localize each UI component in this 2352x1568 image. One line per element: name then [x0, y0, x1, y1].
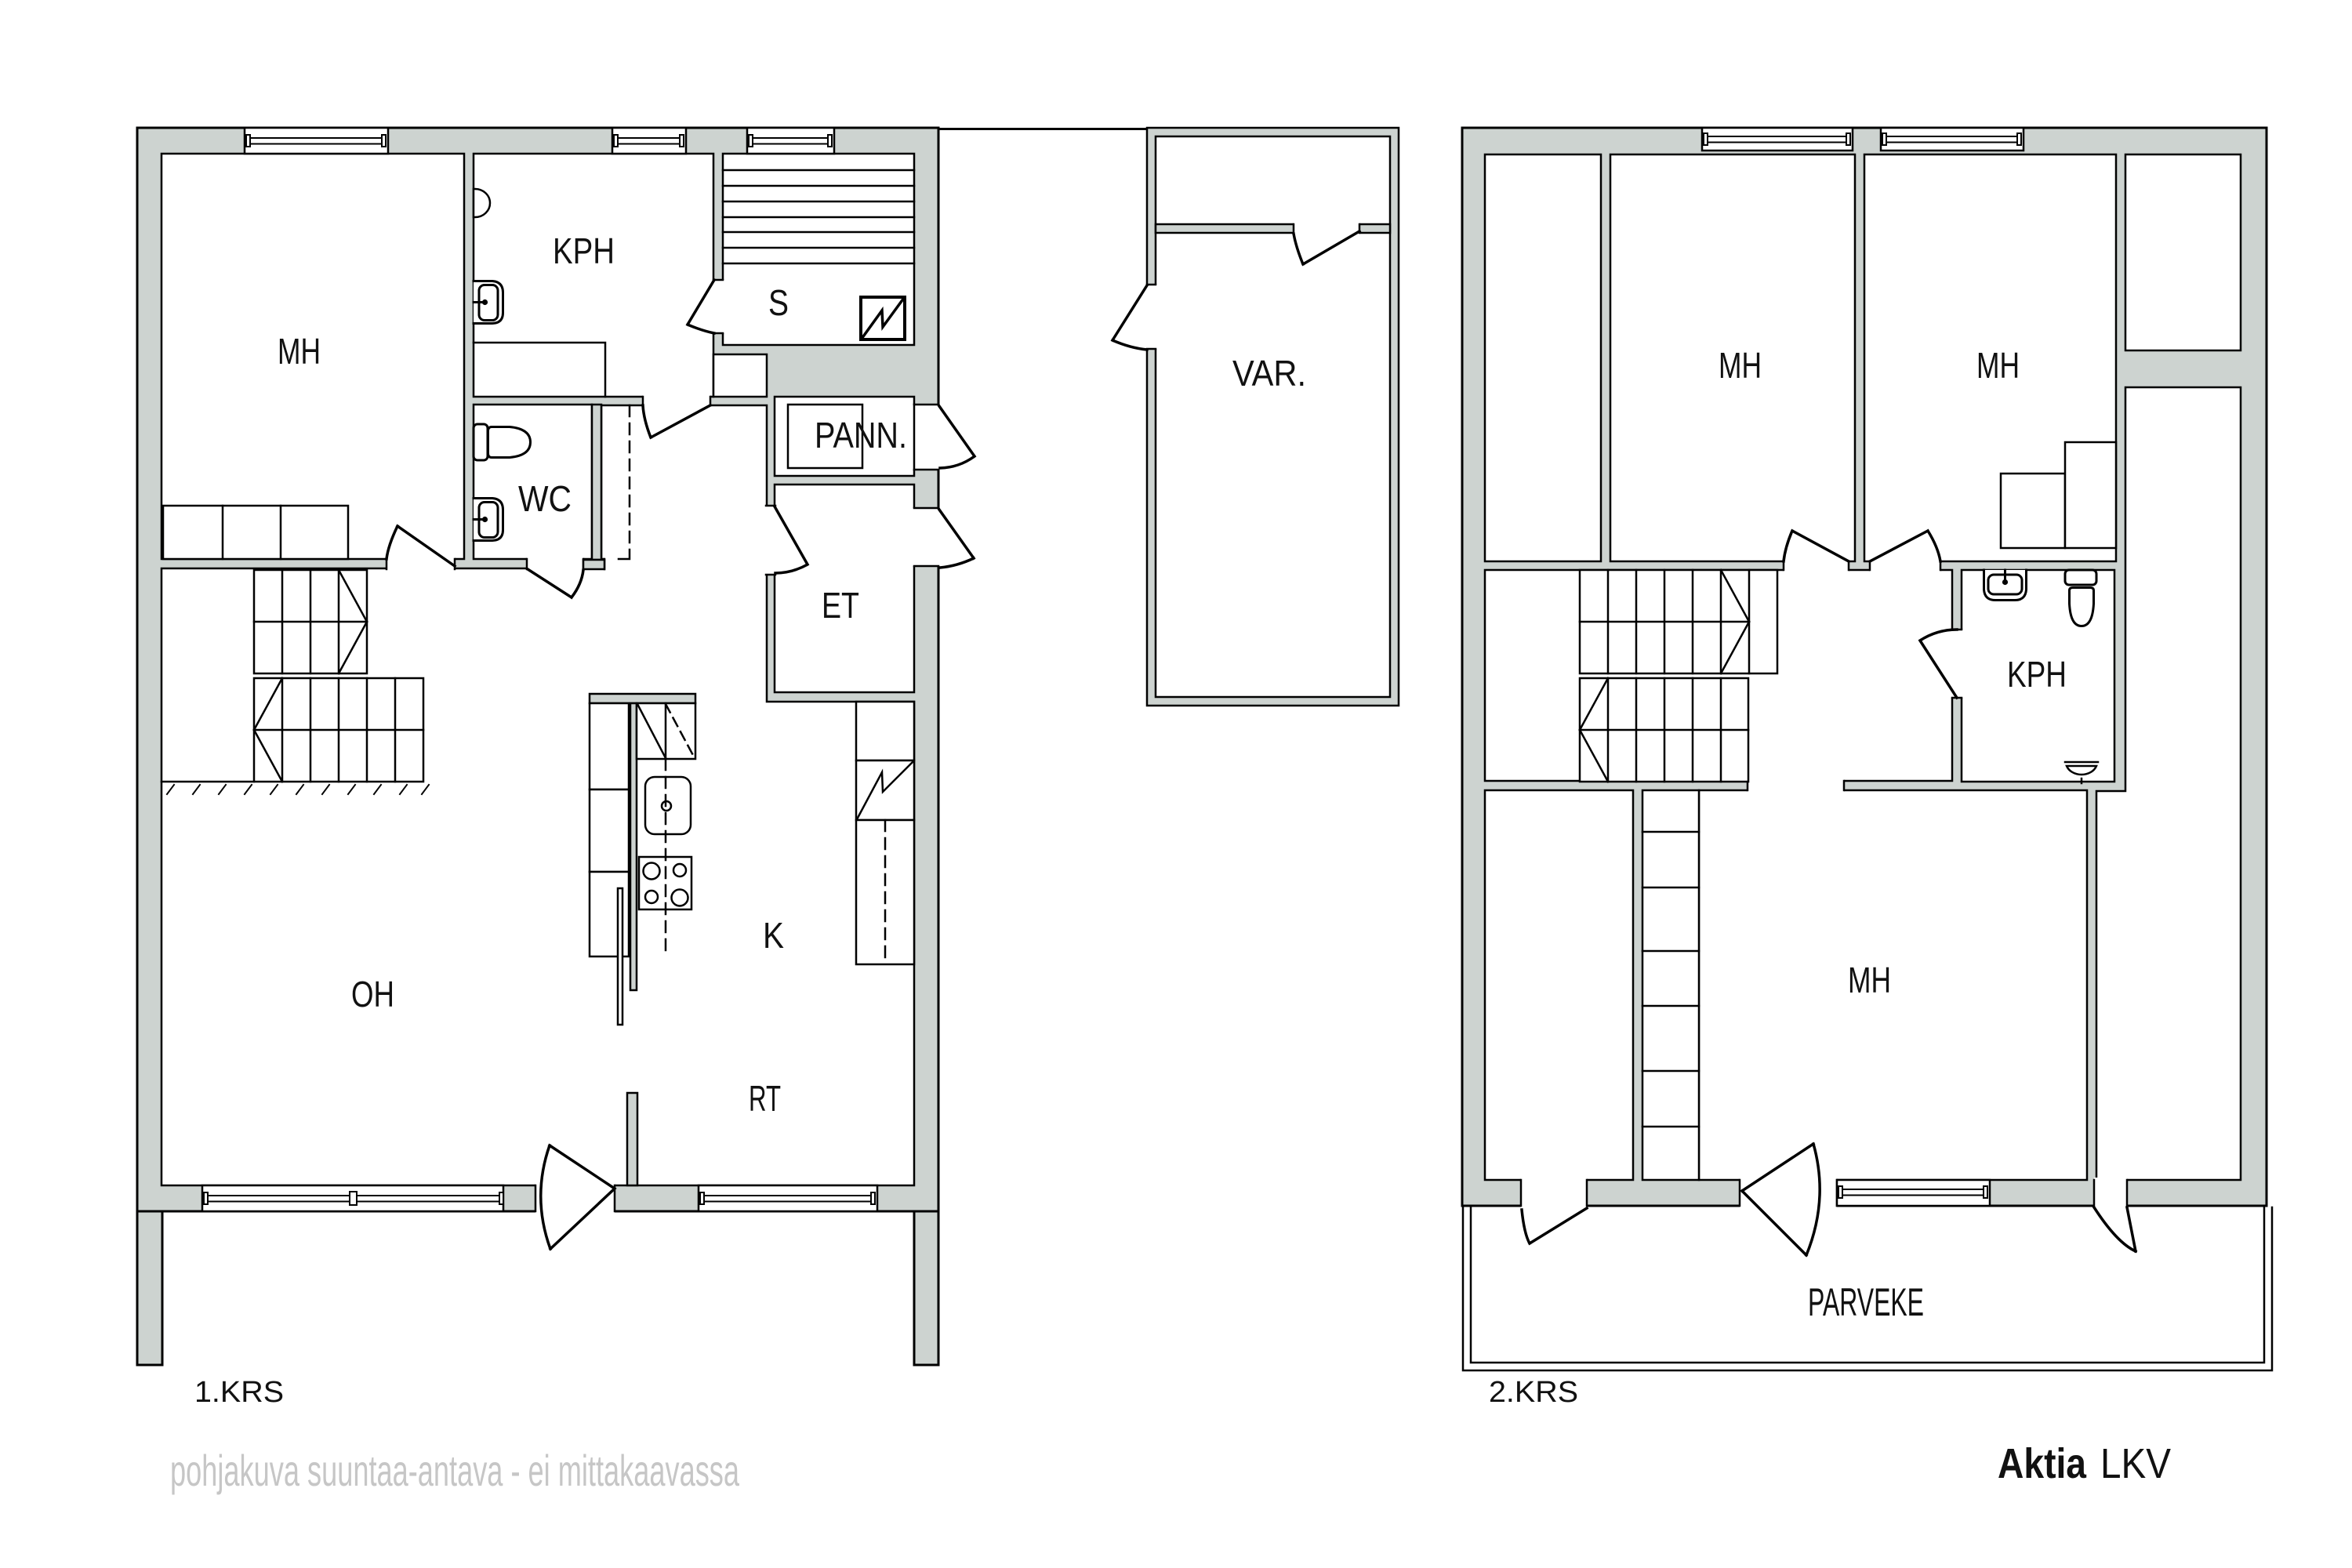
svg-text:VAR.: VAR. [1232, 353, 1306, 394]
svg-text:MH: MH [1719, 345, 1762, 386]
svg-text:2.KRS: 2.KRS [1489, 1376, 1578, 1409]
svg-text:KPH: KPH [553, 230, 615, 271]
svg-text:MH: MH [1976, 345, 2020, 386]
svg-text:LKV: LKV [2100, 1440, 2171, 1487]
svg-text:KPH: KPH [2007, 654, 2067, 695]
svg-text:MH: MH [1848, 960, 1891, 1000]
svg-text:MH: MH [278, 331, 321, 372]
svg-text:OH: OH [351, 974, 394, 1014]
svg-text:S: S [768, 282, 789, 323]
svg-text:1.KRS: 1.KRS [194, 1376, 284, 1409]
svg-text:PANN.: PANN. [815, 415, 907, 456]
svg-text:ET: ET [822, 585, 859, 626]
svg-text:K: K [763, 915, 784, 956]
svg-text:WC: WC [518, 478, 572, 519]
svg-text:PARVEKE: PARVEKE [1808, 1280, 1924, 1324]
svg-text:Aktia: Aktia [1998, 1440, 2087, 1487]
svg-text:RT: RT [749, 1078, 781, 1119]
svg-text:pohjakuva suuntaa-antava - ei: pohjakuva suuntaa-antava - ei mittakaava… [170, 1446, 740, 1495]
